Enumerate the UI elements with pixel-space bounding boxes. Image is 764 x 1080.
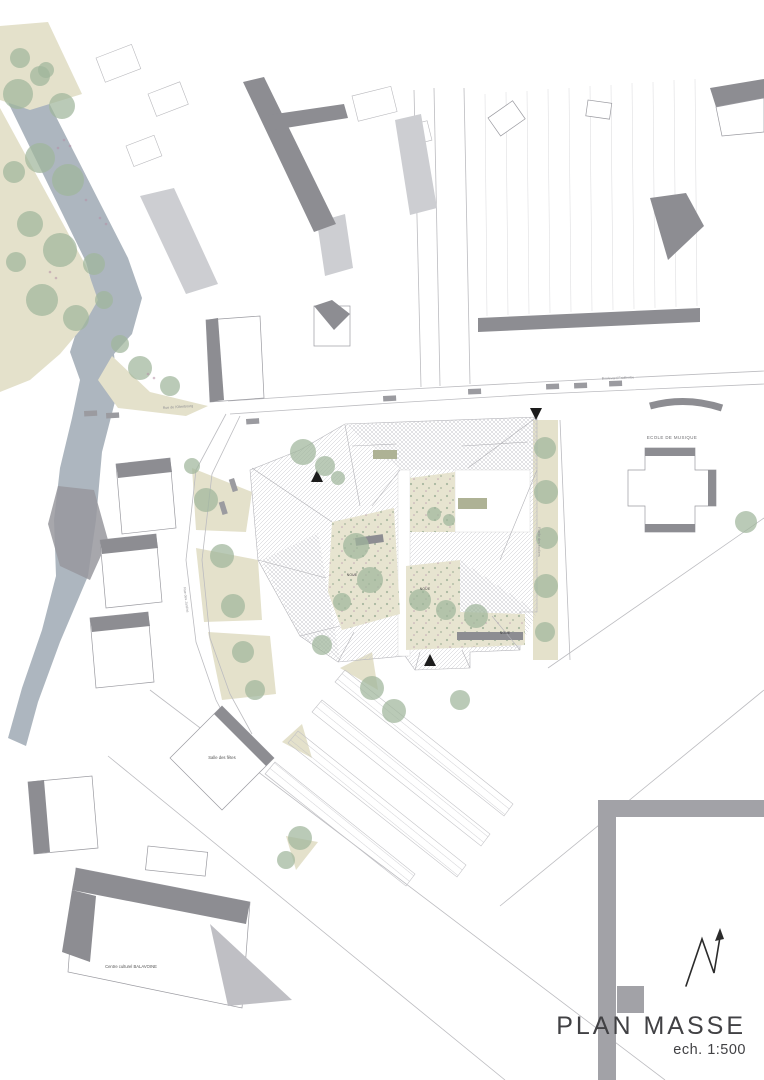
lot-line bbox=[590, 86, 592, 311]
flower-speck bbox=[57, 147, 60, 150]
planting-bar bbox=[373, 450, 397, 459]
car bbox=[609, 381, 622, 387]
tree bbox=[427, 507, 441, 521]
house-outline bbox=[148, 82, 188, 117]
flower-speck bbox=[49, 271, 52, 274]
flower-speck bbox=[105, 223, 108, 226]
car bbox=[546, 384, 559, 390]
road-east-of-strip bbox=[560, 420, 570, 660]
lot-line bbox=[569, 88, 571, 312]
car bbox=[246, 418, 259, 424]
label-noue-3: NOUE bbox=[500, 631, 511, 635]
tree bbox=[312, 635, 332, 655]
site-plan-page: ECOLE DE MUSIQUESalle des fêtesCentre cu… bbox=[0, 0, 764, 1080]
north-arrow-tip bbox=[715, 928, 724, 941]
label-salle-des-fetes: Salle des fêtes bbox=[208, 755, 235, 760]
house-outline bbox=[352, 86, 397, 121]
tree bbox=[357, 567, 383, 593]
lot-line bbox=[632, 83, 634, 309]
car bbox=[383, 395, 396, 401]
tree bbox=[436, 600, 456, 620]
house-outline bbox=[126, 135, 162, 166]
street-vert-c bbox=[464, 88, 470, 384]
tree bbox=[343, 533, 369, 559]
tree bbox=[443, 514, 455, 526]
tree bbox=[210, 544, 234, 568]
tree bbox=[277, 851, 295, 869]
tree bbox=[128, 356, 152, 380]
tree bbox=[3, 161, 25, 183]
tree bbox=[464, 604, 488, 628]
tree bbox=[3, 79, 33, 109]
tree bbox=[10, 48, 30, 68]
tree bbox=[49, 93, 75, 119]
car bbox=[106, 412, 119, 418]
tree bbox=[382, 699, 406, 723]
flower-speck bbox=[69, 145, 72, 148]
tree bbox=[331, 471, 345, 485]
lot-line bbox=[527, 91, 529, 314]
site-plan-drawing: ECOLE DE MUSIQUESalle des fêtesCentre cu… bbox=[0, 0, 764, 1080]
tree bbox=[17, 211, 43, 237]
street-vert-b bbox=[434, 88, 440, 386]
tree bbox=[245, 680, 265, 700]
tree bbox=[95, 291, 113, 309]
label-centre-culturel: Centre culturel BALAVOINE bbox=[105, 964, 157, 969]
tree bbox=[360, 676, 384, 700]
flower-speck bbox=[63, 139, 66, 142]
house bbox=[488, 101, 525, 136]
road-diag-1 bbox=[548, 518, 764, 668]
terrace-roof-dark bbox=[243, 77, 336, 232]
street-band bbox=[478, 308, 700, 332]
tree bbox=[184, 458, 200, 474]
title-block: PLAN MASSE ech. 1:500 bbox=[556, 1012, 746, 1058]
north-arrow-glyph bbox=[686, 937, 720, 986]
house bbox=[586, 100, 612, 119]
ecole-de-musique bbox=[628, 448, 716, 532]
annex bbox=[145, 846, 207, 876]
label-street-jardins: Rue des Jardins bbox=[182, 587, 189, 613]
page-title: PLAN MASSE bbox=[556, 1012, 746, 1041]
car bbox=[84, 410, 97, 416]
flower-speck bbox=[99, 217, 102, 220]
roof-row bbox=[395, 114, 437, 215]
lot-line bbox=[548, 89, 550, 313]
tree bbox=[333, 593, 351, 611]
tree bbox=[290, 439, 316, 465]
tree bbox=[160, 376, 180, 396]
tree bbox=[534, 437, 556, 459]
tree bbox=[534, 480, 558, 504]
ecole-wall-bottom bbox=[645, 524, 695, 532]
flower-speck bbox=[85, 199, 88, 202]
road-diag-2 bbox=[500, 690, 764, 906]
gray-square bbox=[617, 986, 644, 1013]
lot-line bbox=[485, 94, 487, 316]
tree bbox=[315, 456, 335, 476]
tree bbox=[26, 284, 58, 316]
tree bbox=[111, 335, 129, 353]
tree bbox=[288, 826, 312, 850]
car bbox=[468, 389, 481, 395]
tree bbox=[221, 594, 245, 618]
ecole-wall-right bbox=[708, 470, 716, 506]
lot-line bbox=[695, 79, 697, 306]
roof-row bbox=[140, 188, 218, 294]
map-shapes-layer bbox=[0, 22, 764, 1080]
planting-bar bbox=[458, 498, 487, 509]
label-noue-2: NOUE bbox=[420, 587, 431, 591]
lot-line bbox=[653, 82, 655, 308]
flower-speck bbox=[153, 377, 156, 380]
flower-speck bbox=[55, 277, 58, 280]
label-ecole-de-musique: ECOLE DE MUSIQUE bbox=[647, 435, 697, 440]
flower-speck bbox=[147, 373, 150, 376]
big-building-wall-horiz bbox=[598, 800, 764, 817]
tree bbox=[52, 164, 84, 196]
tree bbox=[534, 574, 558, 598]
bridge bbox=[650, 401, 722, 408]
tree bbox=[735, 511, 757, 533]
noue-wall-bar bbox=[457, 632, 523, 640]
label-noue-1: NOUE bbox=[347, 573, 358, 577]
tree bbox=[535, 622, 555, 642]
tree bbox=[6, 252, 26, 272]
label-street-ruelle: Ruelle des écoliers bbox=[537, 527, 541, 557]
tree bbox=[232, 641, 254, 663]
lot-line bbox=[611, 85, 613, 310]
lot-line bbox=[674, 80, 676, 307]
label-street-boulevard: Boulevard Faidherbe bbox=[602, 375, 635, 380]
tree bbox=[450, 690, 470, 710]
centre-wall-west bbox=[62, 890, 96, 962]
tree bbox=[43, 233, 77, 267]
house-outline bbox=[96, 44, 141, 82]
car bbox=[574, 383, 587, 389]
tree bbox=[409, 589, 431, 611]
tree bbox=[83, 253, 105, 275]
ecole-wall-top bbox=[645, 448, 695, 456]
tree bbox=[63, 305, 89, 331]
tree bbox=[25, 143, 55, 173]
tree bbox=[38, 62, 54, 78]
tree bbox=[194, 488, 218, 512]
scale-label: ech. 1:500 bbox=[556, 1042, 746, 1058]
